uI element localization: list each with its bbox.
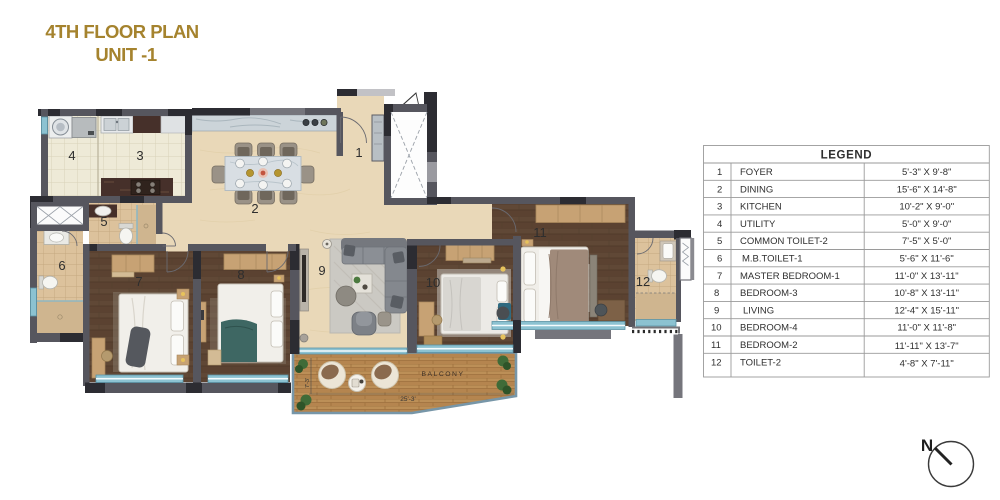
svg-text:10: 10 (426, 275, 440, 290)
svg-text:5: 5 (717, 236, 722, 247)
svg-text:9: 9 (714, 305, 719, 316)
svg-text:8: 8 (237, 267, 244, 282)
svg-text:6: 6 (58, 258, 65, 273)
svg-text:7: 7 (717, 271, 722, 282)
svg-text:LEGEND: LEGEND (821, 150, 873, 162)
svg-text:11'-0" X 11'-8": 11'-0" X 11'-8" (897, 323, 956, 334)
svg-text:BEDROOM-3: BEDROOM-3 (740, 288, 798, 299)
svg-text:3: 3 (136, 148, 143, 163)
svg-text:1: 1 (717, 167, 722, 178)
svg-text:12: 12 (711, 357, 722, 368)
svg-text:7'-3': 7'-3' (305, 378, 311, 388)
svg-text:7: 7 (135, 274, 142, 289)
svg-text:11: 11 (533, 225, 547, 240)
svg-text:10'-2" X 9'-0": 10'-2" X 9'-0" (899, 202, 954, 213)
svg-text:UTILITY: UTILITY (740, 219, 776, 230)
svg-text:9: 9 (318, 263, 325, 278)
svg-text:5: 5 (100, 214, 107, 229)
svg-text:5'-0" X 9'-0": 5'-0" X 9'-0" (902, 219, 951, 230)
svg-text:15'-6" X 14'-8": 15'-6" X 14'-8" (897, 184, 957, 195)
svg-text:UNIT -1: UNIT -1 (95, 44, 156, 65)
svg-text:4TH FLOOR PLAN: 4TH FLOOR PLAN (45, 21, 198, 42)
svg-text:COMMON TOILET-2: COMMON TOILET-2 (740, 236, 828, 247)
svg-text:12: 12 (636, 274, 650, 289)
svg-text:1: 1 (355, 145, 362, 160)
svg-text:6: 6 (717, 254, 722, 265)
svg-text:BALCONY: BALCONY (422, 371, 465, 378)
svg-text:TOILET-2: TOILET-2 (740, 357, 781, 368)
svg-text:MASTER BEDROOM-1: MASTER BEDROOM-1 (740, 271, 840, 282)
svg-text:BEDROOM-4: BEDROOM-4 (740, 323, 798, 334)
svg-text:10'-8" X 13'-11": 10'-8" X 13'-11" (894, 288, 959, 299)
svg-text:BEDROOM-2: BEDROOM-2 (740, 340, 798, 351)
svg-text:11'-0" X 13'-11": 11'-0" X 13'-11" (895, 271, 959, 282)
svg-text:8: 8 (714, 288, 719, 299)
svg-text:N: N (921, 436, 933, 455)
svg-text:KITCHEN: KITCHEN (740, 202, 782, 213)
svg-text:DINING: DINING (740, 184, 773, 195)
svg-text:5'-3" X 9'-8": 5'-3" X 9'-8" (902, 167, 951, 178)
svg-text:M.B.TOILET-1: M.B.TOILET-1 (742, 254, 803, 265)
svg-text:2: 2 (717, 184, 722, 195)
svg-text:4: 4 (717, 219, 722, 230)
svg-text:11: 11 (711, 340, 721, 351)
svg-text:10: 10 (711, 323, 722, 334)
svg-text:4'-8" X 7'-11": 4'-8" X 7'-11" (900, 358, 954, 369)
svg-text:5'-6" X 11'-6": 5'-6" X 11'-6" (900, 254, 954, 265)
svg-text:3: 3 (717, 202, 722, 213)
svg-text:12'-4" X 15'-11": 12'-4" X 15'-11" (894, 305, 959, 316)
svg-text:LIVING: LIVING (743, 305, 774, 316)
svg-text:11'-11" X 13'-7": 11'-11" X 13'-7" (895, 341, 959, 352)
svg-text:25'-3': 25'-3' (400, 396, 416, 403)
svg-text:FOYER: FOYER (740, 167, 773, 178)
svg-text:7'-5" X 5'-0": 7'-5" X 5'-0" (902, 236, 951, 247)
svg-text:2: 2 (251, 201, 258, 216)
svg-text:4: 4 (68, 148, 75, 163)
